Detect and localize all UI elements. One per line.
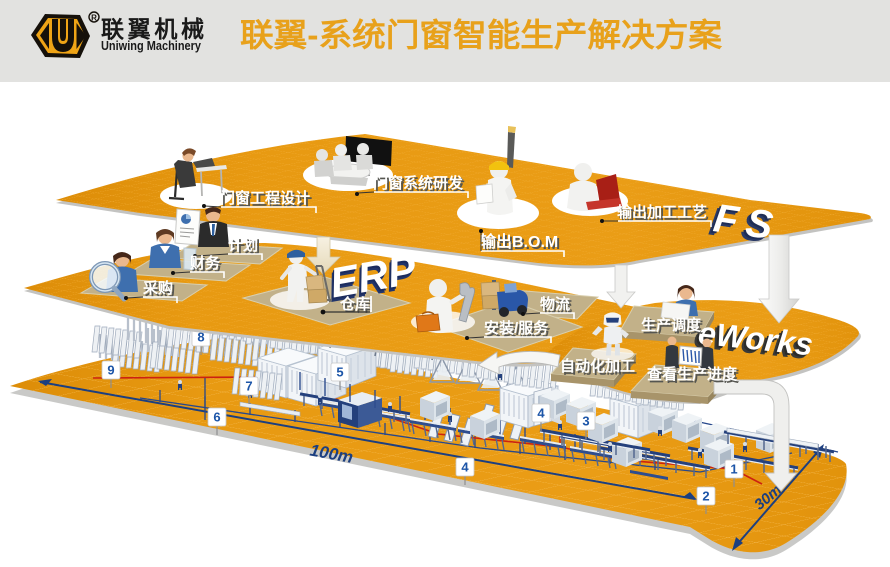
svg-text:生产调度: 生产调度: [641, 316, 702, 334]
svg-text:3: 3: [582, 414, 589, 429]
svg-text:4: 4: [461, 460, 469, 475]
svg-text:采购: 采购: [142, 279, 173, 297]
svg-text:门窗系统研发: 门窗系统研发: [373, 174, 464, 192]
svg-text:财务: 财务: [190, 254, 221, 272]
svg-text:自动化加工: 自动化加工: [560, 357, 635, 375]
svg-text:物流: 物流: [540, 295, 570, 313]
svg-text:7: 7: [245, 379, 252, 394]
svg-text:4: 4: [537, 406, 545, 421]
svg-text:门窗工程设计: 门窗工程设计: [220, 189, 310, 207]
svg-text:查看生产进度: 查看生产进度: [647, 365, 738, 383]
svg-text:6: 6: [213, 410, 220, 425]
svg-text:1: 1: [730, 462, 737, 477]
svg-text:安装/服务: 安装/服务: [484, 319, 549, 337]
svg-text:5: 5: [336, 365, 343, 380]
svg-text:输出B.O.M: 输出B.O.M: [480, 232, 558, 251]
svg-text:Uniwing Machinery: Uniwing Machinery: [101, 39, 201, 53]
svg-text:输出加工工艺: 输出加工工艺: [617, 203, 707, 221]
svg-text:联翼-系统门窗智能生产解决方案: 联翼-系统门窗智能生产解决方案: [240, 17, 723, 53]
svg-text:2: 2: [702, 489, 709, 504]
svg-text:9: 9: [107, 363, 114, 378]
svg-text:R: R: [91, 14, 97, 23]
svg-text:计划: 计划: [228, 236, 258, 254]
svg-text:仓库: 仓库: [339, 295, 370, 313]
